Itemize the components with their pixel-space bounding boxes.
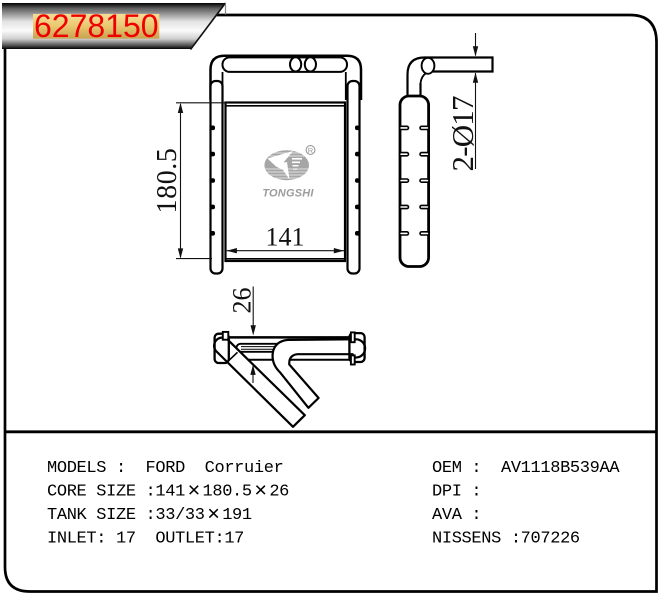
svg-text:TANK SIZE :33/33×191: TANK SIZE :33/33×191 — [47, 504, 252, 528]
svg-text:INLET: 17 OUTLET:17: INLET: 17 OUTLET:17 — [47, 530, 244, 549]
svg-text:OEM : AV1118B539AA: OEM : AV1118B539AA — [432, 459, 620, 478]
svg-text:R: R — [308, 146, 314, 155]
svg-text:DPI :: DPI : — [432, 483, 481, 502]
svg-text:141: 141 — [266, 223, 305, 252]
svg-text:AVA :: AVA : — [432, 506, 481, 525]
svg-text:TONGSHI: TONGSHI — [262, 187, 314, 199]
svg-text:NISSENS :707226: NISSENS :707226 — [432, 530, 580, 549]
svg-text:26: 26 — [228, 288, 257, 314]
svg-text:180.5: 180.5 — [152, 148, 183, 214]
svg-text:MODELS : FORD Corruier: MODELS : FORD Corruier — [47, 459, 283, 478]
svg-text:6278150: 6278150 — [34, 8, 159, 44]
svg-text:CORE SIZE :141×180.5×26: CORE SIZE :141×180.5×26 — [47, 480, 289, 504]
svg-text:2-Ø17: 2-Ø17 — [445, 96, 480, 172]
